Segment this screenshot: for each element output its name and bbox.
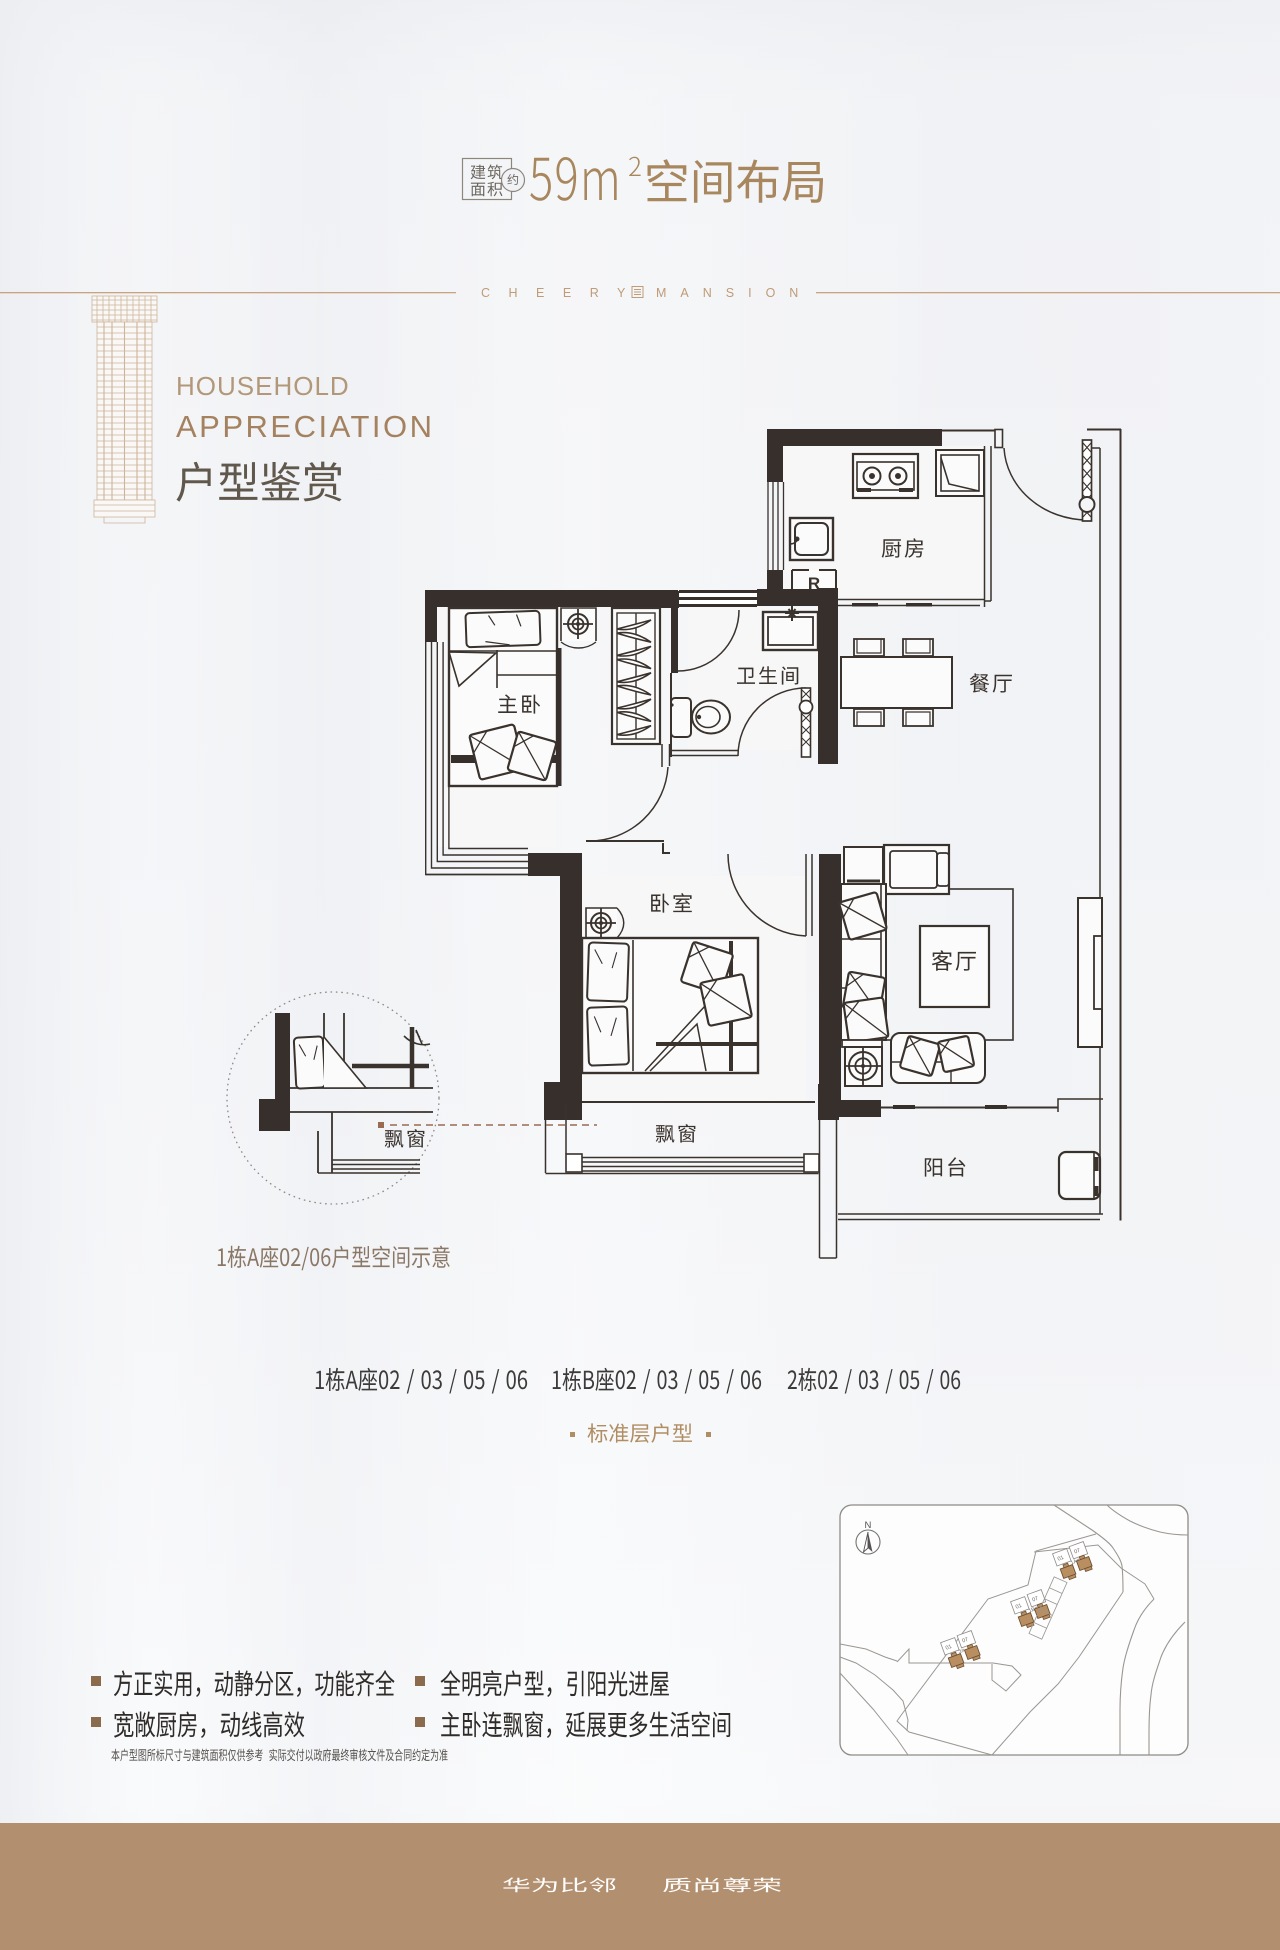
svg-text:CHEERY: CHEERY [481,286,644,300]
svg-text:HOUSEHOLD: HOUSEHOLD [176,371,350,401]
svg-text:APPRECIATION: APPRECIATION [176,409,435,444]
svg-text:N: N [865,1520,872,1531]
svg-text:MANSION: MANSION [656,286,812,300]
